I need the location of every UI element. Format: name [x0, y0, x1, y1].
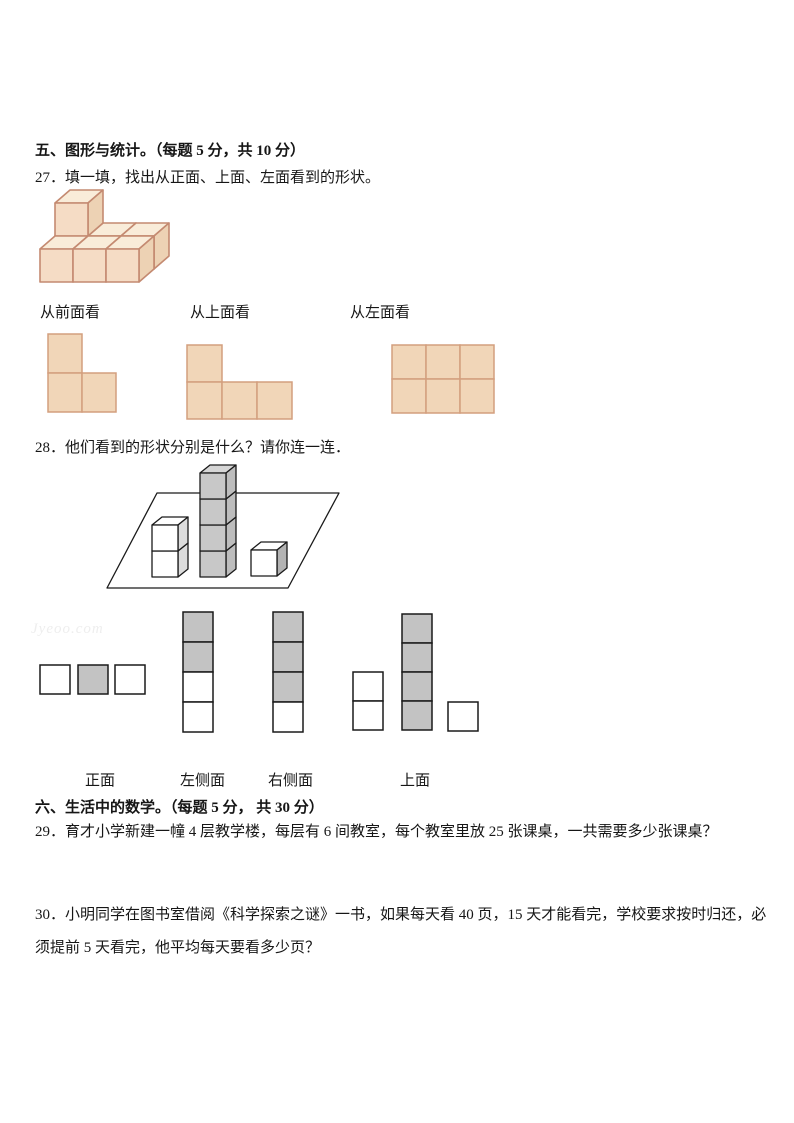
grid-cell — [273, 612, 303, 642]
grid-cell — [273, 702, 303, 732]
grid-cell — [392, 379, 426, 413]
grid-cell — [78, 665, 108, 694]
q27-top-view-shape — [185, 343, 294, 421]
q28-cubes-on-plane-figure — [95, 455, 355, 600]
watermark-text: Jyeoo.com — [31, 621, 104, 638]
grid-cell — [460, 345, 494, 379]
q27-view-label-top: 从上面看 — [190, 301, 250, 322]
q28-option-front-shape — [38, 663, 147, 696]
grid-cell — [48, 373, 82, 412]
section-six-heading: 六、生活中的数学。（每题 5 分， 共 30 分） — [35, 796, 324, 817]
grid-cell — [402, 701, 432, 730]
section-five-heading: 五、图形与统计。（每题 5 分，共 10 分） — [35, 139, 305, 160]
grid-cell — [402, 672, 432, 701]
grid-cell — [273, 642, 303, 672]
grid-cell — [183, 702, 213, 732]
question-29-text: 29．育才小学新建一幢 4 层教学楼，每层有 6 间教室，每个教室里放 25 张… — [35, 820, 718, 841]
grid-cell — [115, 665, 145, 694]
q28-label-top: 上面 — [400, 769, 430, 790]
q27-view-label-front: 从前面看 — [40, 301, 100, 322]
grid-cell — [183, 642, 213, 672]
grid-cell — [187, 345, 222, 382]
grid-cell — [187, 382, 222, 419]
grid-cell — [402, 614, 432, 643]
q28-option-right-side-shape — [271, 610, 305, 734]
grid-cell — [426, 379, 460, 413]
grid-cell — [402, 643, 432, 672]
grid-cell — [48, 334, 82, 373]
q28-option-left-side-shape — [181, 610, 215, 734]
grid-cell — [392, 345, 426, 379]
question-28-text: 28．他们看到的形状分别是什么？请你连一连． — [35, 436, 350, 457]
grid-cell — [460, 379, 494, 413]
grid-cell — [222, 382, 257, 419]
grid-cell — [426, 345, 460, 379]
grid-cell — [82, 373, 116, 412]
grid-cell — [273, 672, 303, 702]
q27-cube-stack-figure — [30, 180, 200, 290]
grid-cell — [40, 665, 70, 694]
grid-cell — [257, 382, 292, 419]
q28-label-front: 正面 — [85, 769, 115, 790]
question-30-text: 30．小明同学在图书室借阅《科学探索之谜》一书，如果每天看 40 页，15 天才… — [35, 899, 775, 965]
q28-label-right-side: 右侧面 — [268, 769, 313, 790]
grid-cell — [353, 701, 383, 730]
q27-view-label-left: 从左面看 — [350, 301, 410, 322]
q27-left-view-shape — [390, 343, 496, 415]
grid-cell — [448, 702, 478, 731]
q28-option-top-shape — [351, 612, 480, 733]
q27-front-view-shape — [46, 332, 118, 414]
q28-label-left-side: 左侧面 — [180, 769, 225, 790]
grid-cell — [183, 612, 213, 642]
grid-cell — [183, 672, 213, 702]
grid-cell — [353, 672, 383, 701]
worksheet-page: 五、图形与统计。（每题 5 分，共 10 分） 27．填一填，找出从正面、上面、… — [0, 0, 794, 1123]
